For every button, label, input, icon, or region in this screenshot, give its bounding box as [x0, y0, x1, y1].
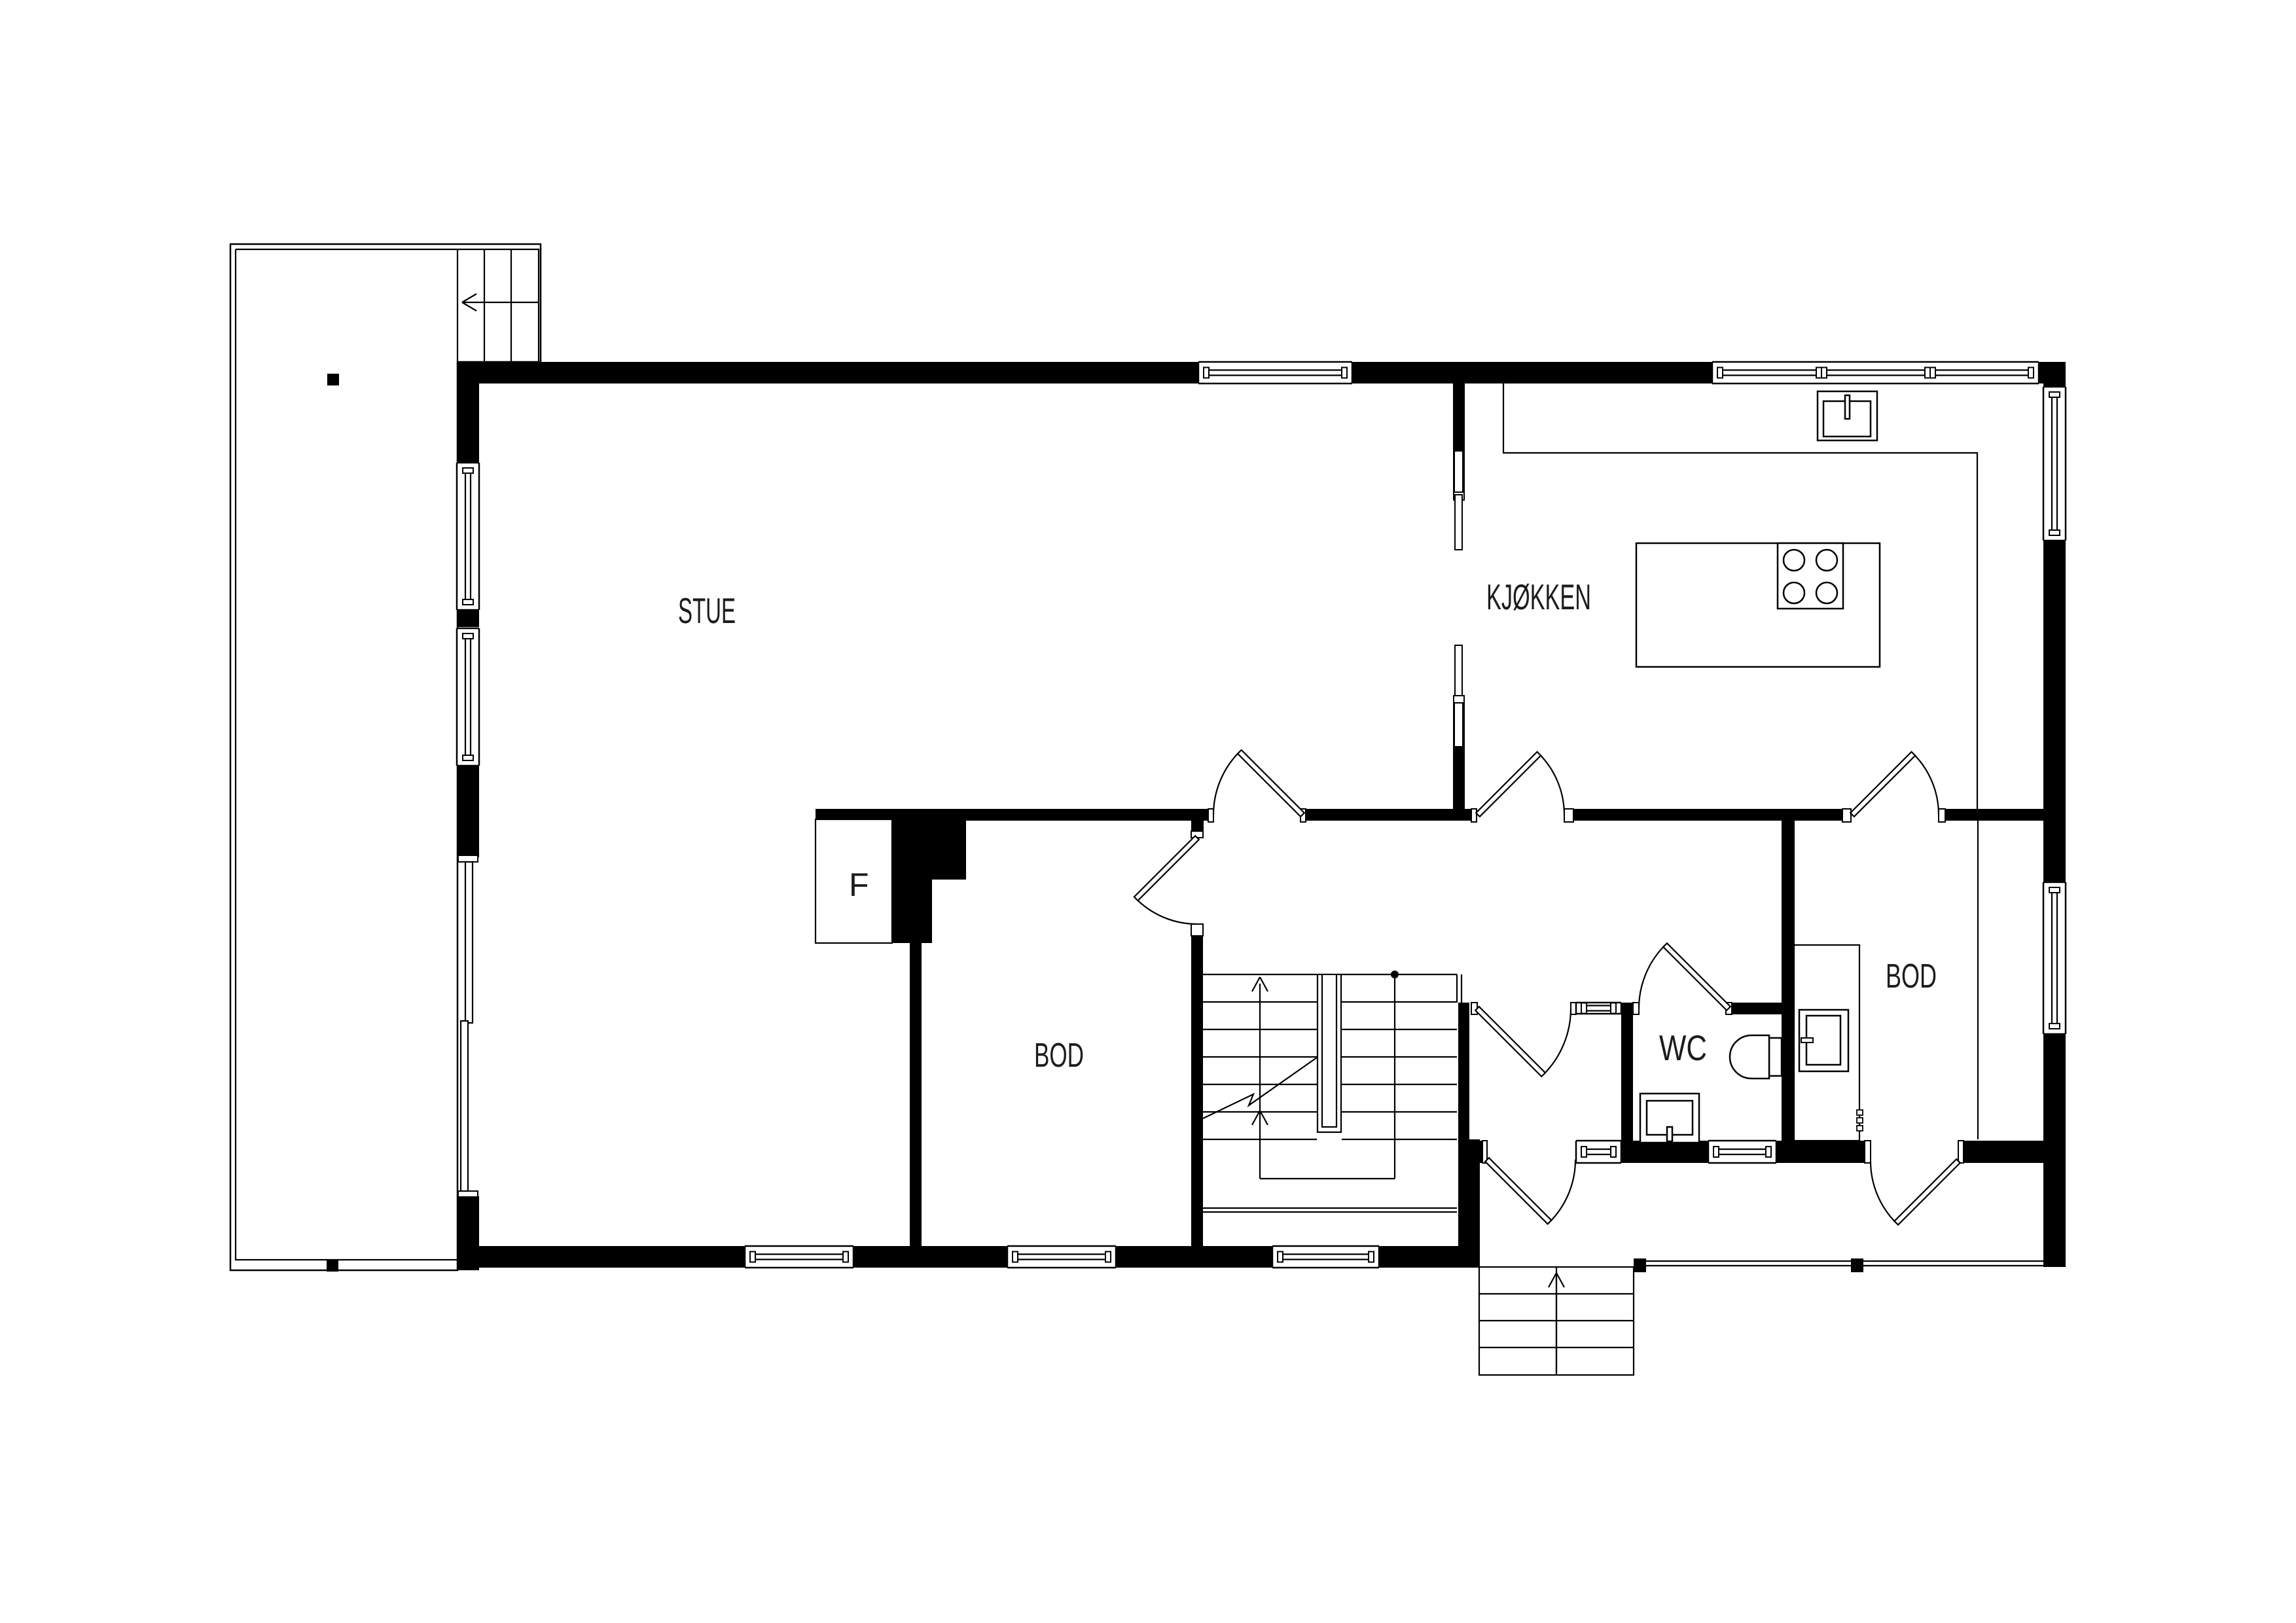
- svg-text:STUE: STUE: [678, 590, 736, 631]
- svg-text:BOD: BOD: [1034, 1037, 1084, 1075]
- svg-text:WC: WC: [1659, 1027, 1707, 1068]
- svg-text:F: F: [849, 866, 869, 903]
- svg-text:KJØKKEN: KJØKKEN: [1486, 577, 1591, 617]
- svg-text:BOD: BOD: [1886, 957, 1937, 995]
